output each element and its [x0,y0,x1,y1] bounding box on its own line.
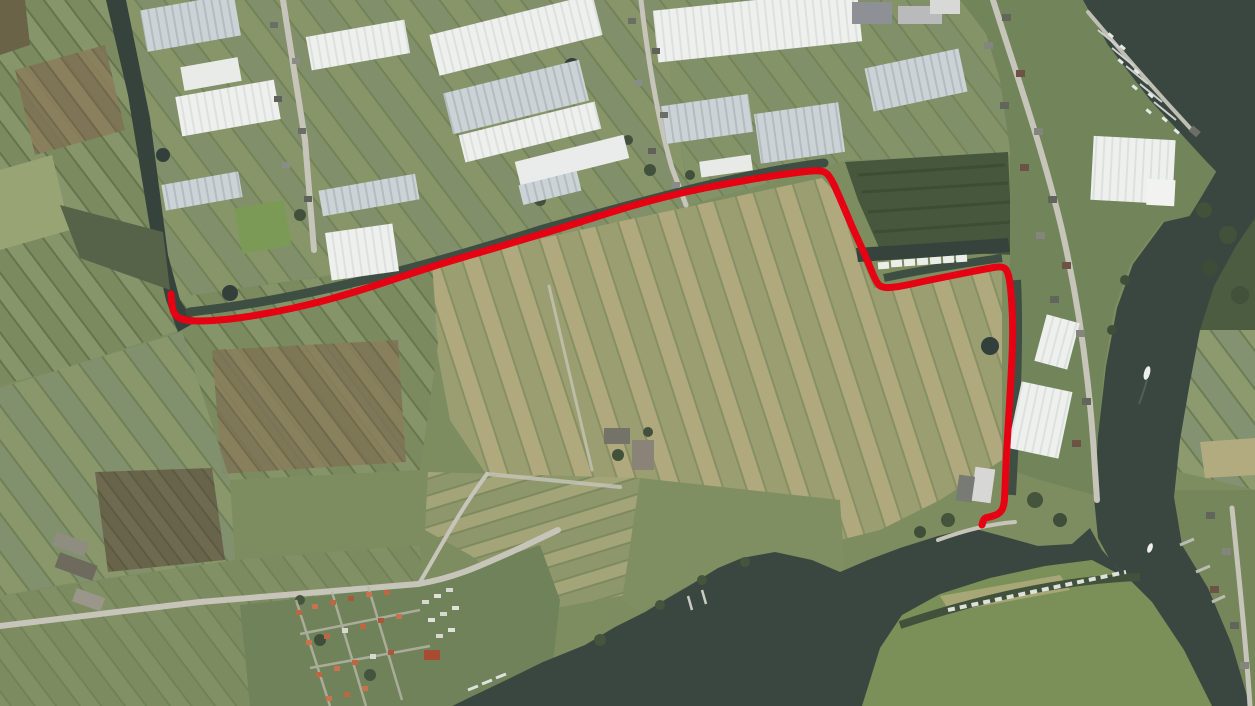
dark-plowed-field [95,468,225,572]
tree [594,634,606,646]
tree [643,427,653,437]
water-basin [156,148,170,162]
aerial-imagery [0,0,1255,706]
house [1230,622,1239,629]
tree [697,575,707,585]
caravan [428,618,435,622]
tree [685,170,695,180]
caravan [370,654,376,659]
house [648,148,656,154]
lawn-field [234,200,291,254]
tree [1231,286,1249,304]
tree [914,526,926,538]
house [274,96,282,102]
cottage [352,660,358,665]
caravan [436,634,443,638]
barn [852,2,892,24]
barn [930,0,960,14]
caravan [440,612,447,616]
cottage [330,600,336,605]
water-basin [222,285,238,301]
cottage [326,696,332,701]
house [1000,102,1009,109]
water-basin [981,337,999,355]
caravan [452,606,459,610]
caravan [342,628,348,633]
farm-barn [632,440,654,470]
houseboat [956,255,967,263]
caravan [434,594,441,598]
tree [294,209,306,221]
tree [1107,325,1117,335]
tree [1027,492,1043,508]
house [1050,296,1059,303]
tree [941,513,955,527]
houseboat [930,257,941,265]
cottage [378,618,384,623]
tree [1219,226,1237,244]
cottage [316,672,322,677]
farmhouse [604,428,630,444]
tree [1053,513,1067,527]
house [1072,440,1081,447]
house [1240,662,1249,669]
house [282,162,290,168]
house [1062,262,1071,269]
house [984,42,993,49]
cottage [384,590,390,595]
cottage [348,596,354,601]
tree [740,557,750,567]
tree [1202,260,1218,276]
warehouse-annex [1146,179,1175,206]
cottage [296,610,302,615]
cottage [324,634,330,639]
cottage [362,686,368,691]
house [1048,196,1057,203]
caravan [422,600,429,604]
brown-strip-field [212,340,406,474]
house [1206,512,1215,519]
tree [364,669,376,681]
aerial-map-viewport [0,0,1255,706]
cottage [306,640,312,645]
house [634,80,642,86]
caravan [448,628,455,632]
cottage [388,650,394,655]
houseboat [904,259,915,267]
tree [1196,202,1212,218]
house [1036,232,1045,239]
east-bank-tan-field [1200,438,1255,478]
tree [612,449,624,461]
house [1210,586,1219,593]
cottage [344,692,350,697]
house [652,48,660,54]
tree [655,600,665,610]
tree [1120,275,1130,285]
houseboat [878,262,889,270]
tree [644,164,656,176]
house [1034,128,1043,135]
house [1016,70,1025,77]
cottage [360,624,366,629]
house [270,22,278,28]
house [298,128,306,134]
park-main-building [424,650,440,660]
house [628,18,636,24]
house [292,58,300,64]
cottage [312,604,318,609]
houseboat [891,260,902,268]
house [660,112,668,118]
house [1082,398,1091,405]
cottage [366,592,372,597]
white-greenhouse [325,224,399,281]
houseboat [917,258,928,266]
house [1222,548,1231,555]
house [1002,14,1011,21]
houseboat [943,256,954,264]
house [1076,330,1085,337]
house [672,182,680,188]
cottage [334,666,340,671]
caravan [446,588,453,592]
house [1020,164,1029,171]
house [304,196,312,202]
cottage [396,614,402,619]
